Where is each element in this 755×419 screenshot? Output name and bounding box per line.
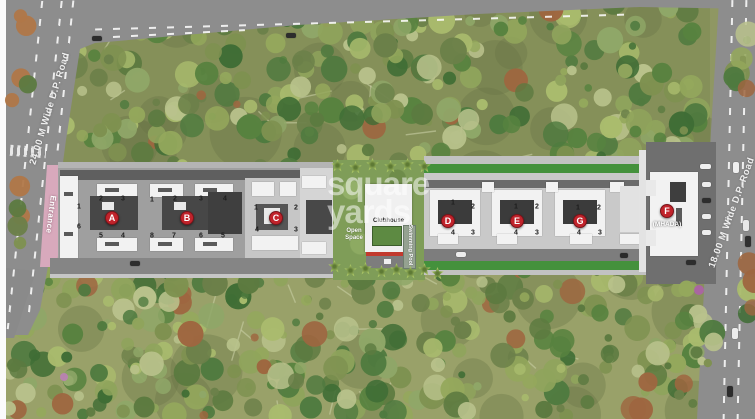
unit-number: 4 — [577, 230, 581, 237]
unit-number: 1 — [254, 205, 258, 212]
unit-number: 6 — [199, 233, 203, 240]
unit-number: 1 — [77, 204, 81, 211]
unit-number: 2 — [294, 205, 298, 212]
palm-tree-icon — [328, 260, 341, 273]
unit-number: 4 — [121, 233, 125, 240]
unit-number: 8 — [150, 233, 154, 240]
palm-tree-icon — [359, 262, 372, 275]
building-badge-a: A — [105, 211, 119, 225]
palm-tree-icon — [431, 267, 444, 280]
unit-number: 2 — [597, 205, 601, 212]
unit-number: 1 — [150, 197, 154, 204]
mhada-label: (MHADA) — [653, 219, 682, 231]
watermark-line2: yards — [327, 198, 429, 226]
unit-number: 4 — [514, 230, 518, 237]
unit-number: 3 — [471, 230, 475, 237]
unit-number: 5 — [221, 233, 225, 240]
unit-number: 1 — [451, 200, 455, 207]
palm-tree-icon — [404, 266, 417, 279]
watermark: square yards — [327, 170, 429, 226]
palm-tree-icon — [375, 265, 388, 278]
unit-number: 3 — [535, 230, 539, 237]
building-badge-d: D — [441, 214, 455, 228]
site-plan: 24.00 M Wide D.P. Road 18.00 M Wide D.P.… — [0, 0, 755, 419]
unit-number: 6 — [77, 224, 81, 231]
unit-number: 4 — [223, 196, 227, 203]
building-badge-b: B — [180, 211, 194, 225]
palm-tree-icon — [344, 264, 357, 277]
unit-number: 1 — [576, 205, 580, 212]
unit-number: 3 — [598, 230, 602, 237]
unit-number: 7 — [172, 233, 176, 240]
unit-number: 1 — [514, 204, 518, 211]
unit-number: 2 — [535, 204, 539, 211]
unit-number: 2 — [471, 204, 475, 211]
building-badge-c: C — [269, 211, 283, 225]
unit-number: 4 — [255, 227, 259, 234]
unit-number: 2 — [173, 196, 177, 203]
building-badge-f: F(MHADA) — [660, 204, 674, 218]
unit-number: 3 — [294, 227, 298, 234]
unit-number: 4 — [451, 230, 455, 237]
palm-tree-icon — [418, 263, 431, 276]
unit-number: 2 — [99, 196, 103, 203]
building-badge-e: E — [510, 214, 524, 228]
unit-number: 3 — [121, 196, 125, 203]
unit-number: 3 — [199, 196, 203, 203]
unit-number: 5 — [99, 233, 103, 240]
palm-tree-icon — [390, 263, 403, 276]
building-badge-g: G — [573, 214, 587, 228]
